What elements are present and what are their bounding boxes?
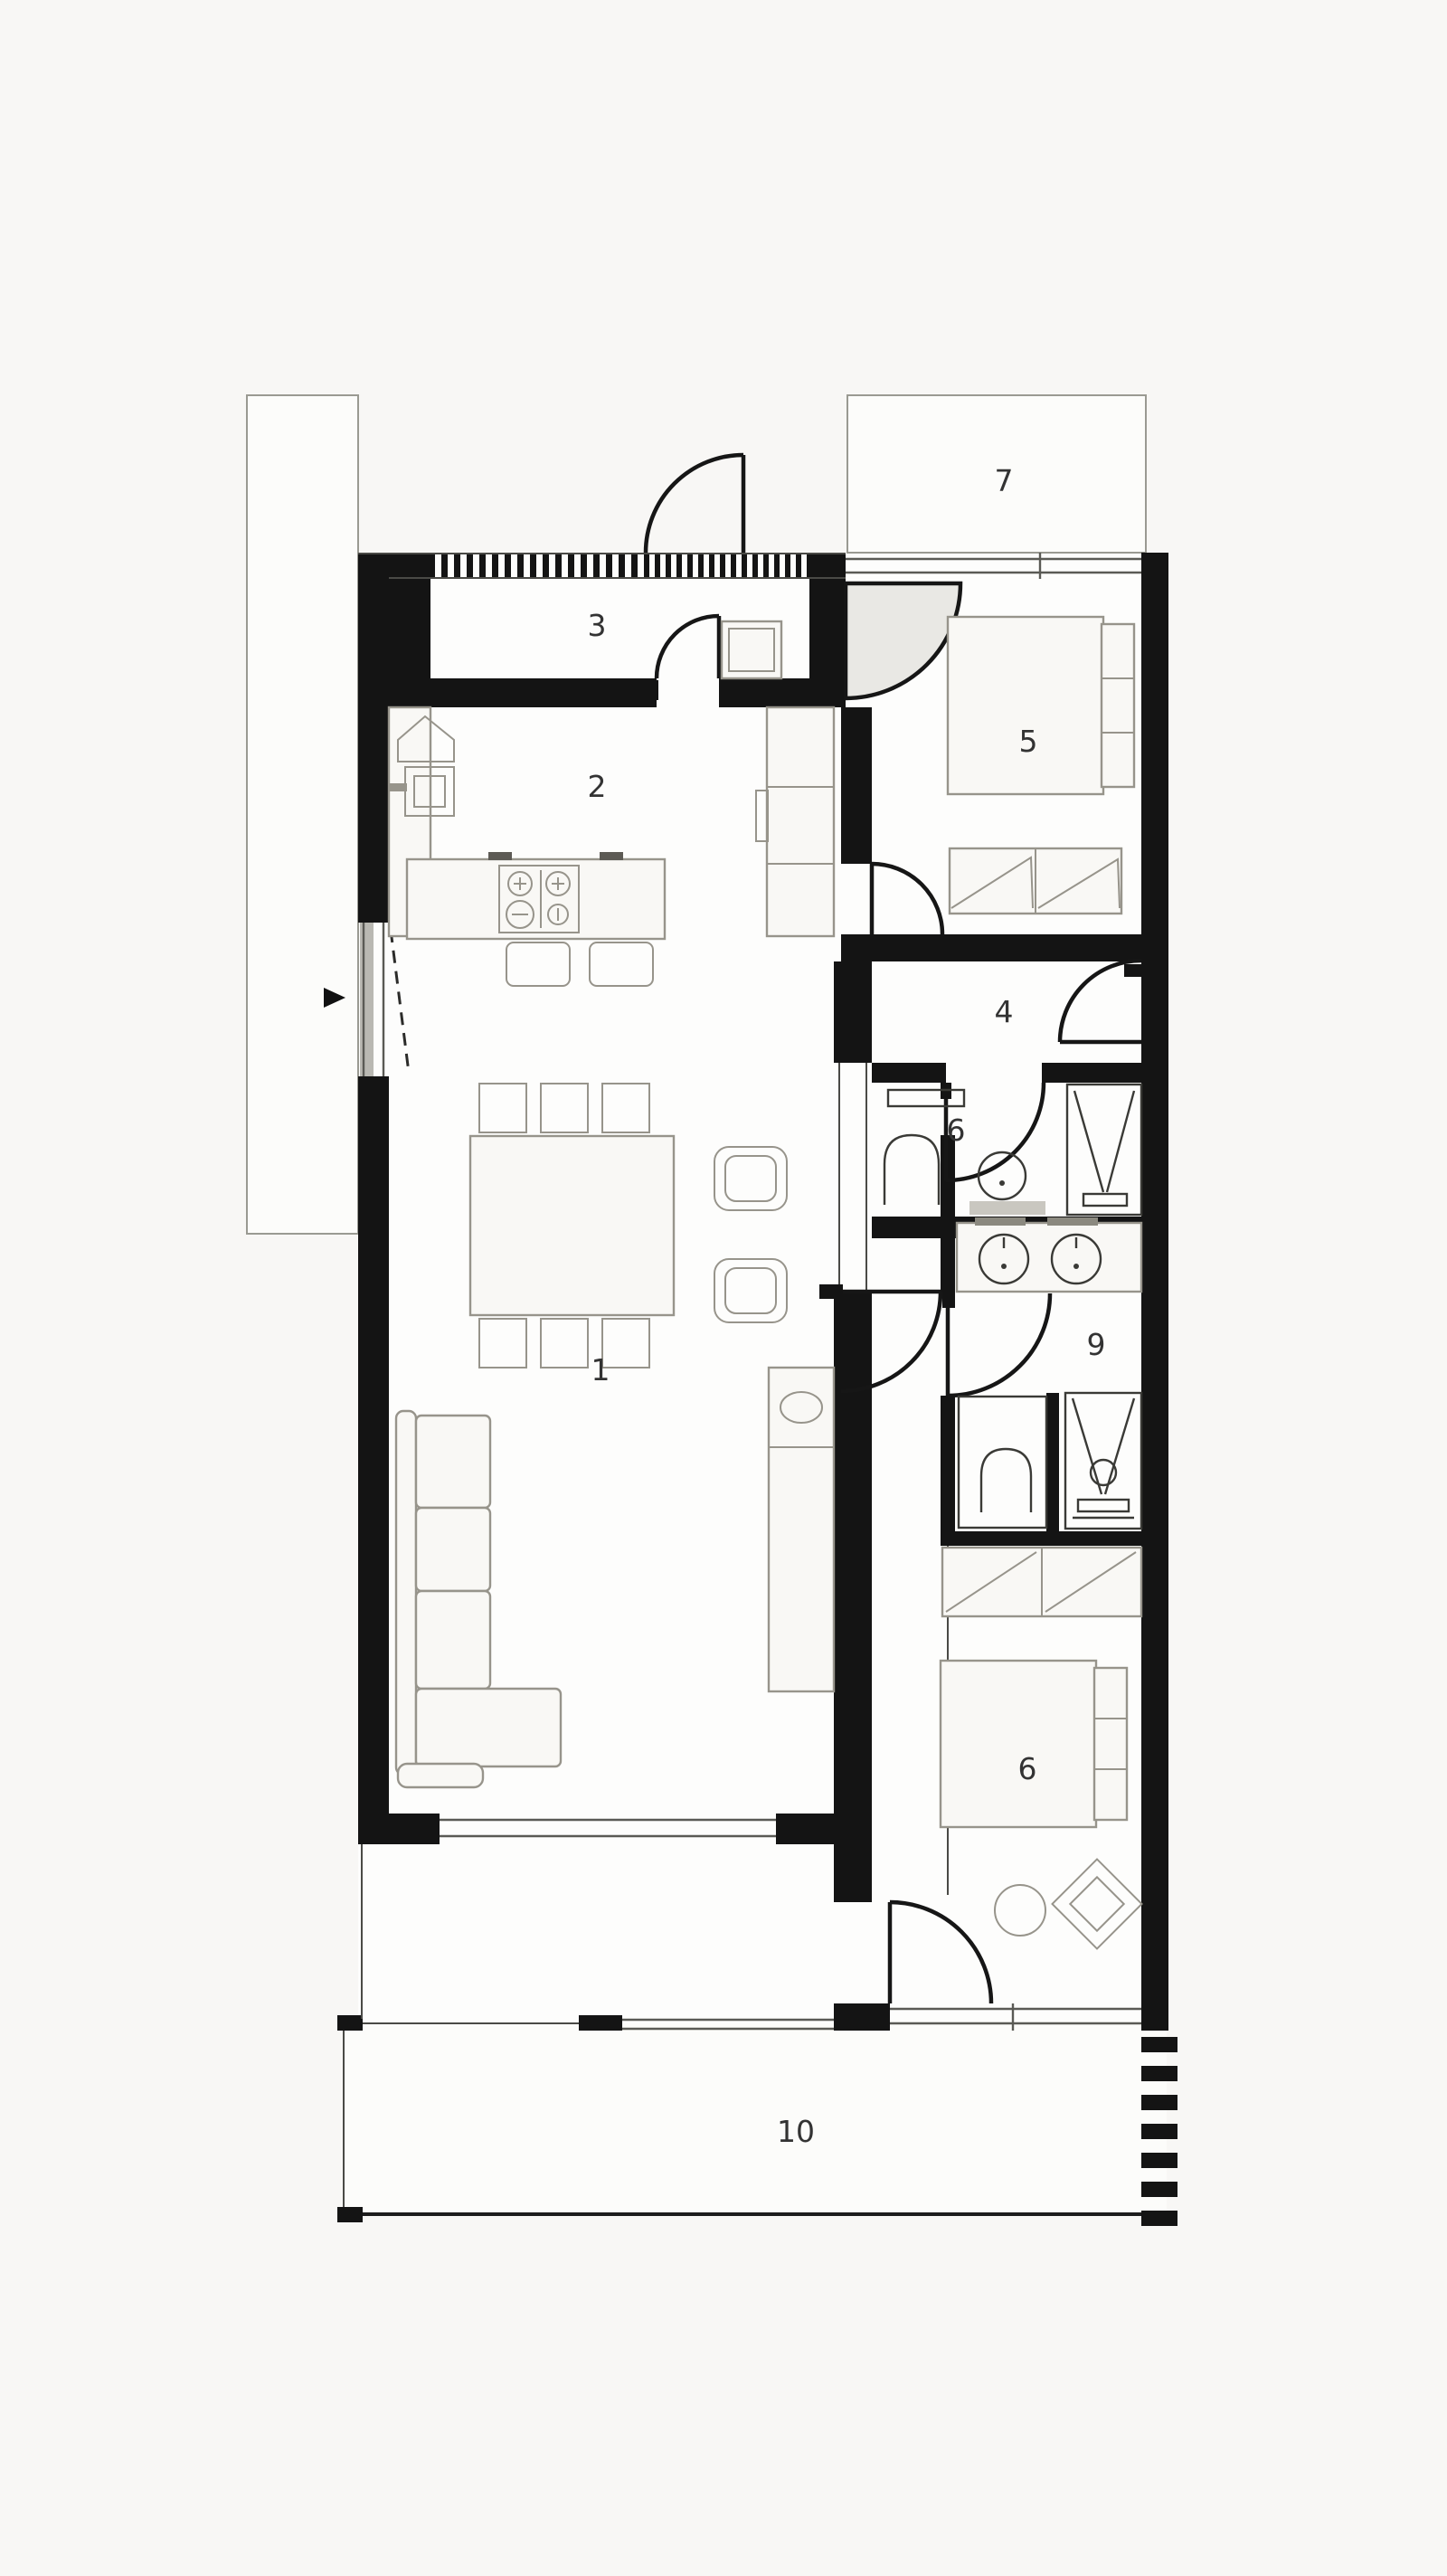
wall-shower-room-south (941, 1531, 1141, 1546)
corridor-cabinet-top (767, 707, 834, 936)
room-label-hallway: 4 (995, 994, 1014, 1029)
wall-bedroom2-southwest-corner (834, 2003, 890, 2031)
vanity (957, 1217, 1141, 1292)
sink-counter (969, 1201, 1045, 1215)
sofa-seat (416, 1508, 490, 1591)
wardrobe-main (950, 848, 1121, 914)
room-label-terrace-bottom: 10 (777, 2114, 815, 2149)
appliance-handle (389, 783, 407, 791)
wall-west-lower (358, 1076, 389, 1814)
bed-second (941, 1661, 1096, 1827)
terrace-bottom-floor (344, 2023, 1167, 2214)
room-label-entry-hall: 3 (588, 608, 607, 643)
wall-bath-north-right (1042, 1063, 1141, 1083)
sofa-seat (416, 1416, 490, 1508)
wall-entry-south-right (719, 678, 846, 707)
wall-shower-room-west-upper (941, 1238, 955, 1293)
wall-entry-south-left (358, 678, 657, 707)
terrace-post-bottom (337, 2207, 363, 2222)
corridor-cabinet-lower (769, 1368, 834, 1691)
wall-west-upper (358, 707, 389, 923)
room-label-living: 1 (591, 1352, 610, 1387)
floor-plan-drawing: 1 2 3 4 5 6 7 9 6 10 (0, 0, 1447, 2576)
wall-entry-right-block (809, 553, 846, 678)
entry-closet (722, 621, 781, 678)
bed-main (948, 617, 1103, 794)
dining-table (470, 1136, 674, 1315)
wall-corridor-west (834, 1292, 872, 1902)
wall-east (1141, 553, 1168, 2031)
terrace-post-top (337, 2015, 363, 2031)
floor-plan-page: 1 2 3 4 5 6 7 9 6 10 (0, 0, 1447, 2576)
sofa-seat (416, 1591, 490, 1689)
wall-bedroom-main-west (841, 707, 872, 864)
sofa-chaise (416, 1689, 561, 1766)
wall-bath-north-left (872, 1063, 946, 1083)
door-entry (646, 455, 743, 553)
wall-living-south-west (358, 1814, 440, 1844)
sofa-armrest (398, 1764, 483, 1787)
wall-shower-room-west-lower (941, 1396, 955, 1531)
bed-pillows (1102, 624, 1134, 787)
hatch-ticks (391, 554, 834, 577)
wall-bedroom-main-south (841, 934, 1168, 961)
room-label-shower-room: 9 (1087, 1327, 1106, 1362)
room-label-bedroom-second: 6 (1018, 1751, 1037, 1786)
wardrobe-second (942, 1548, 1141, 1616)
patio-wall-stub (579, 2015, 622, 2031)
wall-wc-stall (1046, 1393, 1059, 1531)
sofa-back (396, 1411, 416, 1775)
room-label-terrace-top: 7 (995, 463, 1014, 498)
kitchen-island (407, 859, 665, 939)
wall-living-south-east-block (776, 1814, 834, 1844)
bed-pillows (1094, 1668, 1127, 1820)
wall-bedroom2-southeast-corner (1141, 2003, 1168, 2031)
wall-hallway-west (834, 961, 872, 1063)
room-label-bedroom-main: 5 (1019, 724, 1038, 759)
room-label-kitchen: 2 (588, 769, 607, 804)
carport-outline (247, 395, 358, 1234)
bedroom-main-furniture (948, 617, 1134, 914)
room-label-bathroom: 6 (947, 1113, 966, 1148)
